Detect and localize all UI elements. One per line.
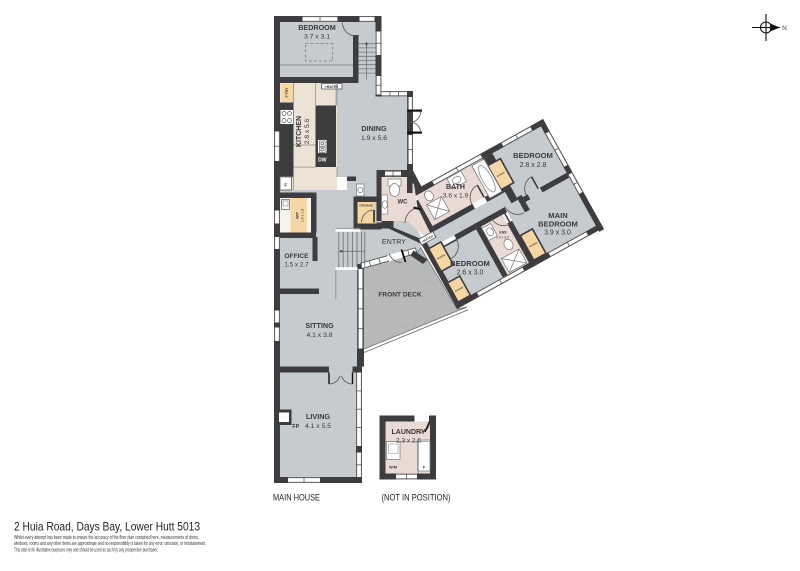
svg-text:2 Huia Road, Days Bay, Lower H: 2 Huia Road, Days Bay, Lower Hutt 5013: [14, 519, 200, 533]
svg-text:KITCHEN: KITCHEN: [296, 116, 303, 147]
svg-text:BEDROOM: BEDROOM: [298, 23, 336, 32]
svg-text:1.9 x 5.6: 1.9 x 5.6: [361, 135, 387, 142]
svg-text:MAIN HOUSE: MAIN HOUSE: [273, 493, 320, 504]
svg-text:SITTING: SITTING: [305, 321, 334, 330]
svg-text:F: F: [284, 183, 287, 188]
svg-text:4.1 x 3.8: 4.1 x 3.8: [306, 332, 332, 339]
svg-text:2.8 x 5.6: 2.8 x 5.6: [304, 119, 311, 145]
svg-text:W/M: W/M: [389, 465, 398, 470]
svg-text:2.3 x 2.6: 2.3 x 2.6: [396, 438, 421, 445]
svg-text:BATH: BATH: [446, 184, 465, 191]
svg-text:LAUNDRY: LAUNDRY: [392, 429, 426, 436]
svg-text:ENS: ENS: [499, 231, 507, 235]
svg-text:3.7 x 3.1: 3.7 x 3.1: [304, 34, 330, 41]
svg-text:CPB’D/HWC: CPB’D/HWC: [359, 205, 373, 208]
svg-text:OFFICE: OFFICE: [284, 253, 309, 260]
svg-text:BEDROOM: BEDROOM: [513, 151, 553, 160]
svg-text:FP: FP: [292, 424, 299, 430]
svg-text:3.9 x 3.0: 3.9 x 3.0: [544, 230, 571, 237]
svg-text:LIVING: LIVING: [306, 412, 330, 421]
svg-text:DW: DW: [318, 158, 327, 164]
svg-text:Whilst every attempt has been: Whilst every attempt has been made to en…: [14, 535, 199, 541]
svg-text:WC: WC: [398, 200, 409, 206]
svg-text:DINING: DINING: [361, 124, 387, 133]
svg-text:2.6 x 3.0: 2.6 x 3.0: [457, 270, 484, 277]
svg-text:3.6 x 1.9: 3.6 x 1.9: [443, 193, 469, 200]
svg-text:BEDROOM: BEDROOM: [538, 220, 578, 229]
svg-text:1.5 x 1.8: 1.5 x 1.8: [301, 209, 305, 222]
svg-text:windows, rooms and any other i: windows, rooms and any other items are a…: [14, 541, 206, 547]
svg-text:WIP: WIP: [296, 212, 300, 219]
svg-text:FRONT DECK: FRONT DECK: [378, 292, 421, 299]
svg-text:2.8 x 2.8: 2.8 x 2.8: [520, 162, 547, 169]
svg-text:This plan is for illustrative: This plan is for illustrative purposes o…: [14, 548, 158, 554]
svg-text:4.1 x 5.5: 4.1 x 5.5: [305, 423, 331, 430]
svg-text:BEDROOM: BEDROOM: [450, 259, 490, 268]
svg-text:P’TRY: P’TRY: [285, 87, 289, 98]
svg-text:(NOT IN POSITION): (NOT IN POSITION): [382, 493, 451, 504]
svg-text:1.5 x 2.7: 1.5 x 2.7: [284, 262, 309, 269]
svg-text:1.4 x 3.0: 1.4 x 3.0: [496, 236, 509, 240]
svg-text:N: N: [782, 25, 787, 32]
svg-text:ENTRY: ENTRY: [382, 237, 406, 246]
